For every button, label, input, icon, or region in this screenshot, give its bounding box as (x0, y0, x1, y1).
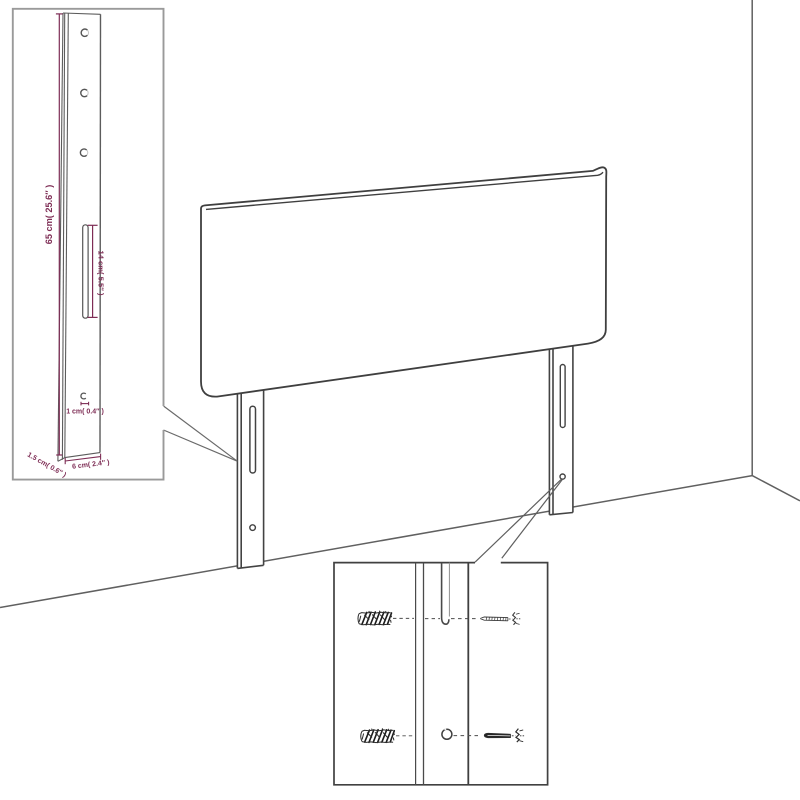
svg-text:65 cm( 25.6″ ): 65 cm( 25.6″ ) (44, 185, 54, 245)
svg-text:1 cm( 0.4″ ): 1 cm( 0.4″ ) (66, 409, 104, 416)
svg-text:14 cm( 5.5″ ): 14 cm( 5.5″ ) (97, 250, 106, 295)
